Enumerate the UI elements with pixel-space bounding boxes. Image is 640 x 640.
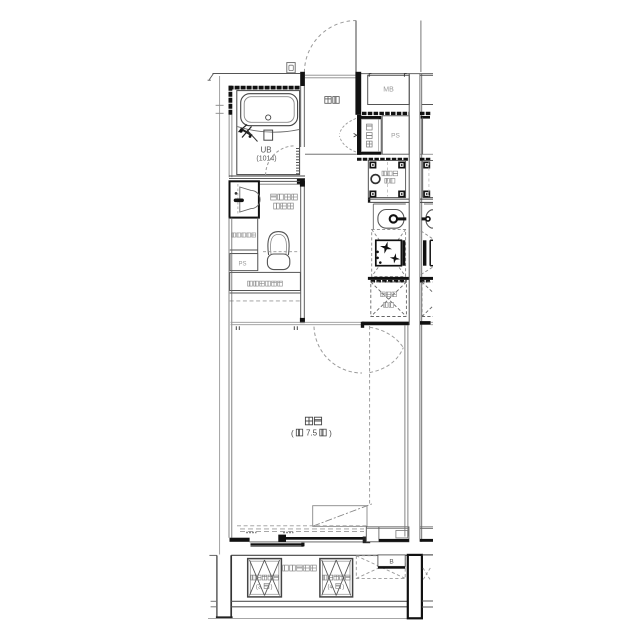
svg-text:): ) xyxy=(329,429,332,438)
svg-text:MB: MB xyxy=(383,87,394,94)
svg-text:B: B xyxy=(389,559,393,566)
svg-text:PS: PS xyxy=(391,133,400,140)
svg-text:UB: UB xyxy=(260,146,271,155)
svg-text:): ) xyxy=(271,584,273,590)
svg-text:(4: (4 xyxy=(328,584,334,590)
svg-text:): ) xyxy=(342,584,344,590)
svg-text:(1014): (1014) xyxy=(256,156,276,163)
svg-text:(: ( xyxy=(291,429,294,438)
svg-text:PS: PS xyxy=(238,262,246,268)
svg-text:(3: (3 xyxy=(256,584,262,590)
svg-text:7.5: 7.5 xyxy=(306,429,318,438)
